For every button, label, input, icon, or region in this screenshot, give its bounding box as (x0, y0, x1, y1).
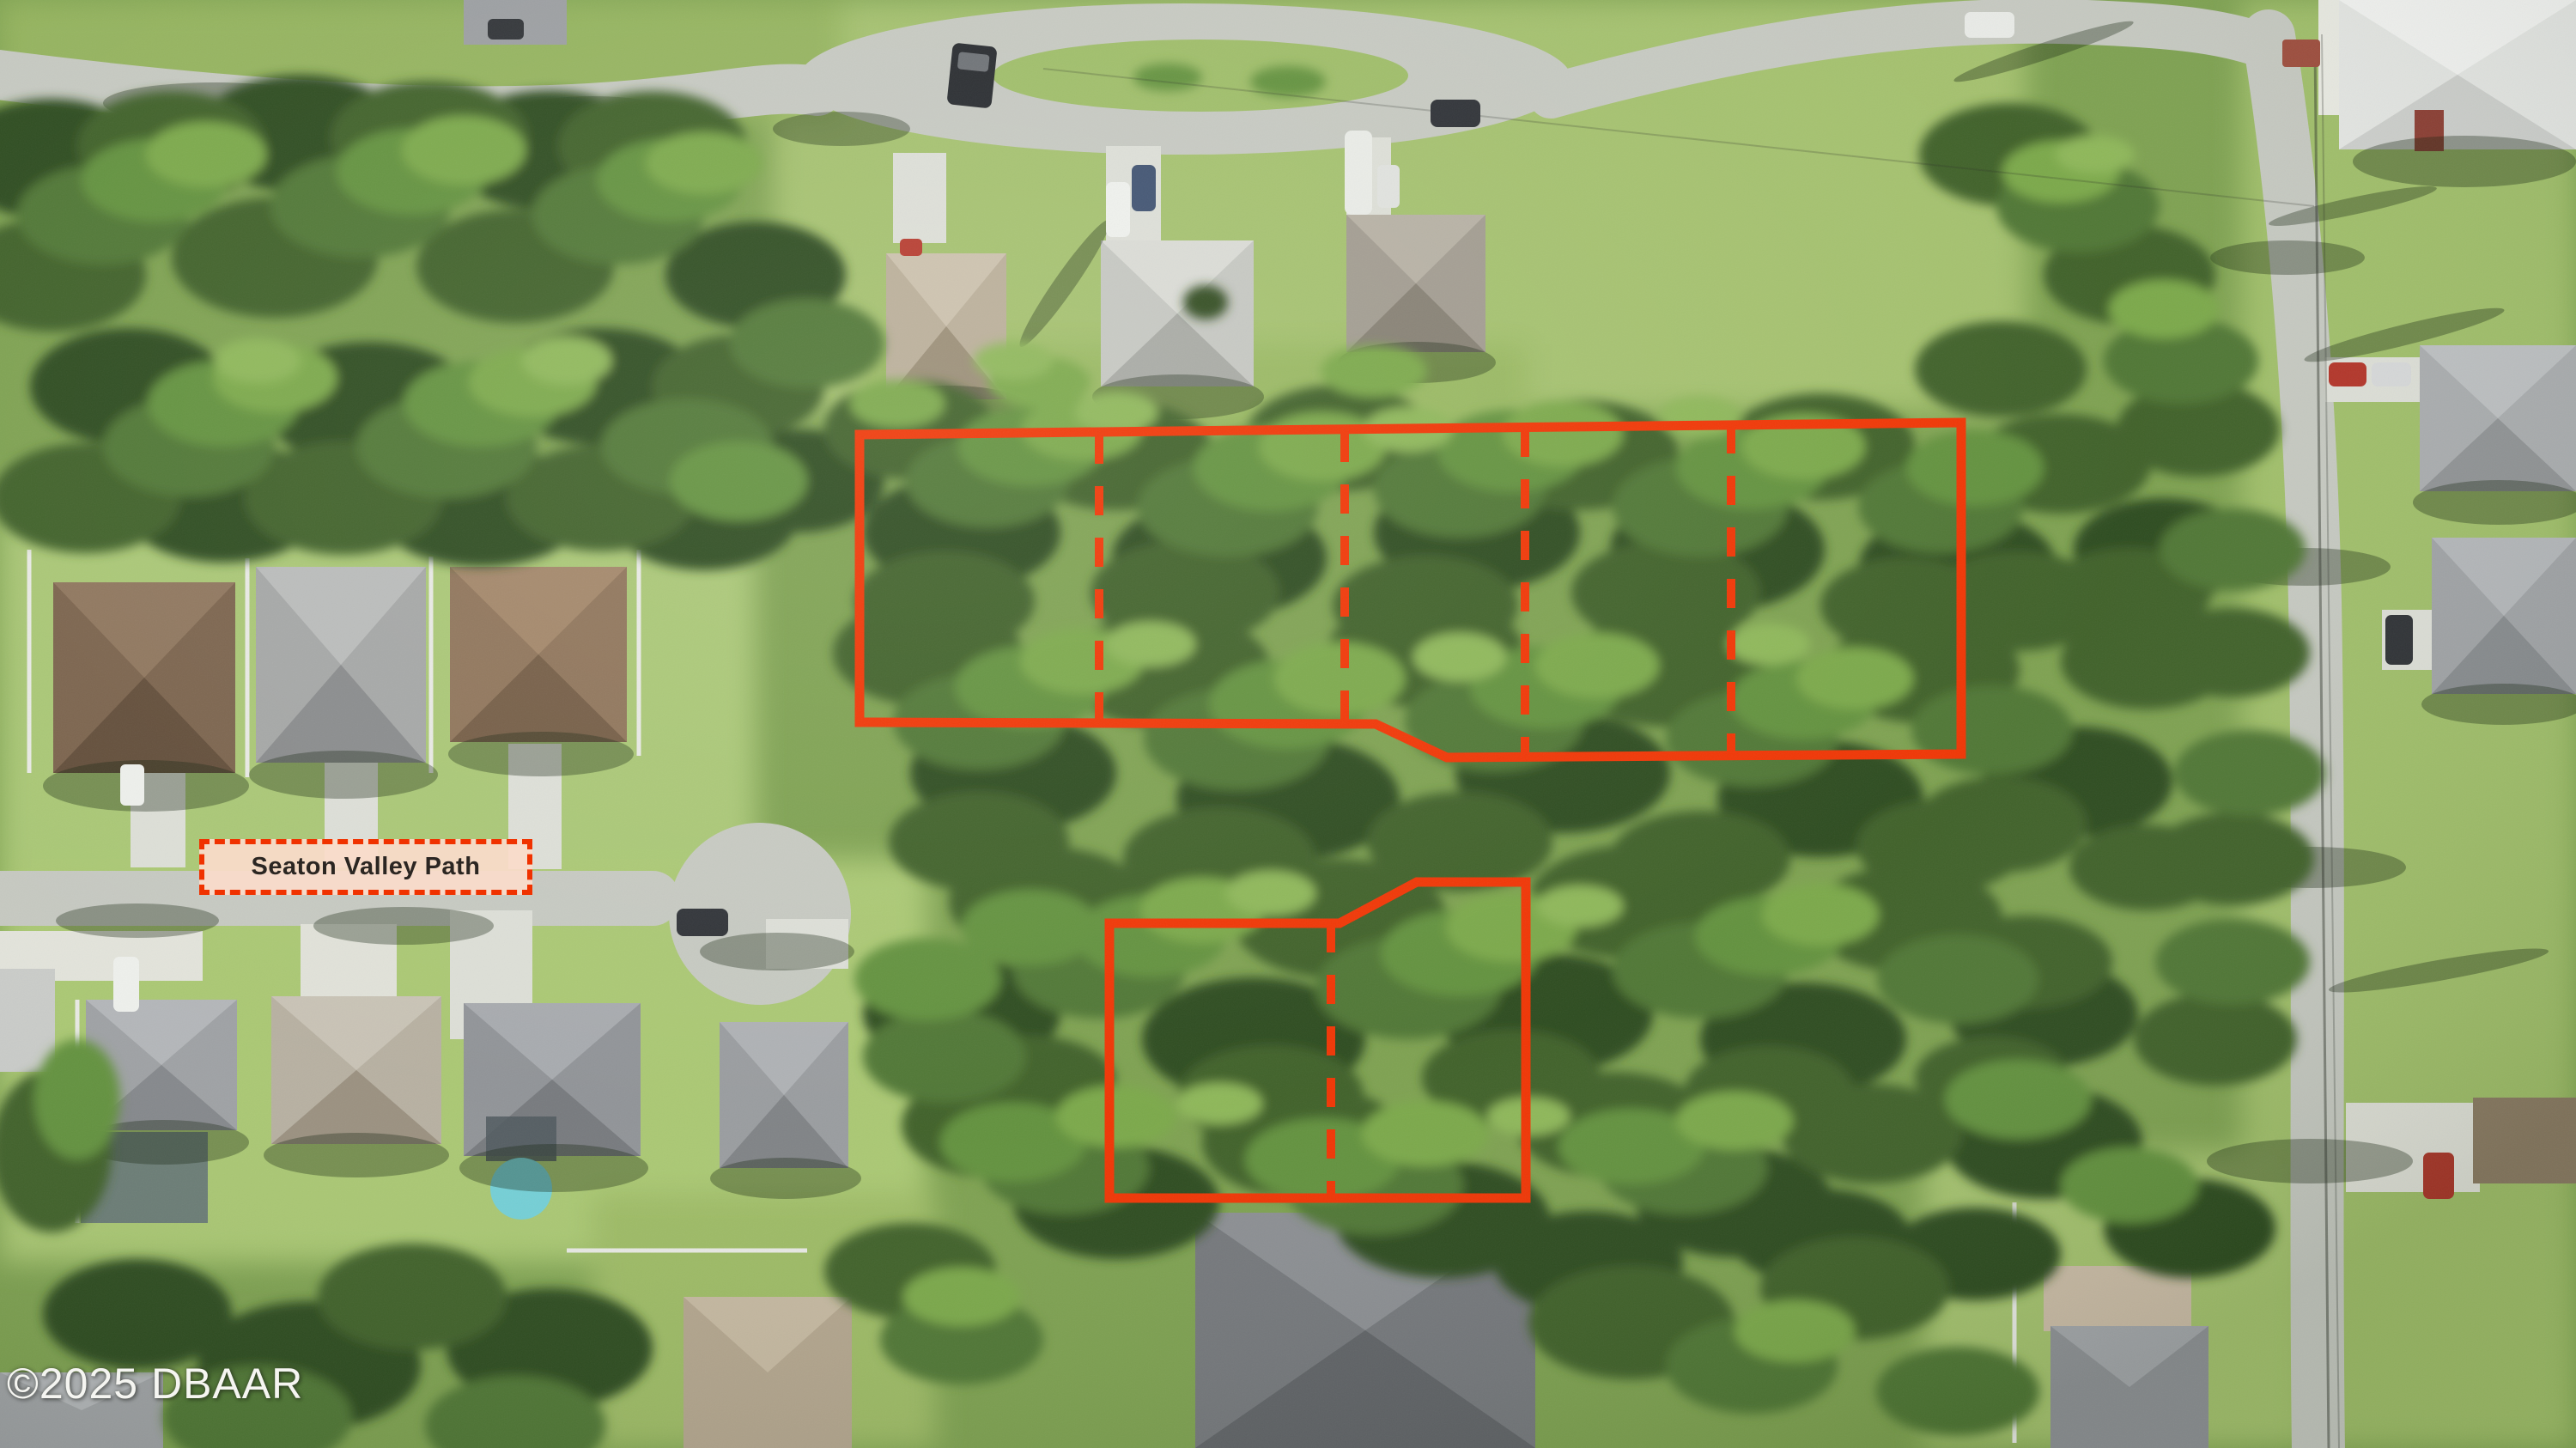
aerial-photo: Seaton Valley Path ©2025 DBAAR (0, 0, 2576, 1448)
aerial-scene (0, 0, 2576, 1448)
photo-grain (0, 0, 2576, 1448)
street-name-label: Seaton Valley Path (199, 839, 532, 895)
copyright-watermark: ©2025 DBAAR (7, 1359, 303, 1408)
